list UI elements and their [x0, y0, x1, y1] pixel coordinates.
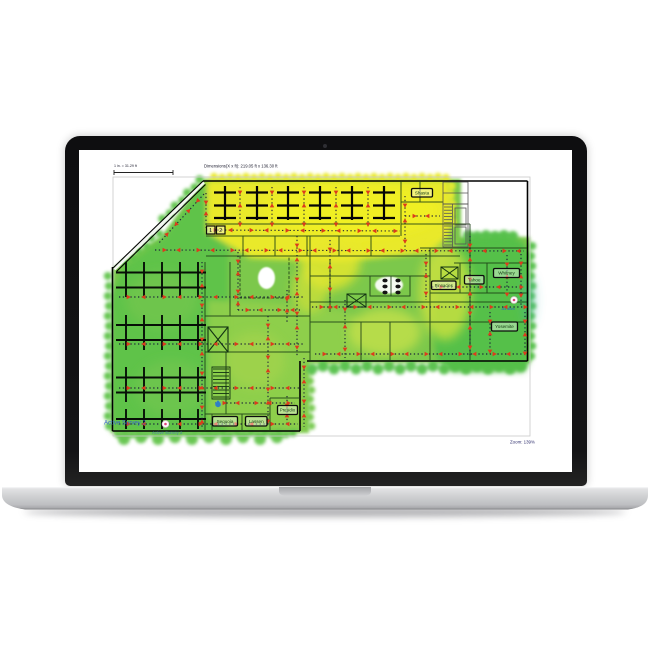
- svg-text:1: 1: [209, 228, 212, 234]
- svg-text:Zoom: 139%: Zoom: 139%: [510, 440, 535, 445]
- svg-text:Lassen: Lassen: [249, 419, 264, 424]
- svg-text:Dimensions(X x ft): 219.05 ft: Dimensions(X x ft): 219.05 ft x 136.30 f…: [204, 164, 278, 169]
- svg-text:Sequoia: Sequoia: [217, 419, 234, 424]
- svg-text:-64 dBm: -64 dBm: [501, 307, 515, 311]
- svg-text:Pinnacles: Pinnacles: [435, 283, 453, 288]
- svg-text:Tahoe: Tahoe: [468, 277, 481, 282]
- svg-text:Active Survey 2: Active Survey 2: [104, 421, 146, 427]
- svg-text:Shasta: Shasta: [415, 190, 430, 195]
- svg-text:Presidio: Presidio: [280, 408, 296, 413]
- svg-text:Yosemite: Yosemite: [495, 324, 514, 329]
- svg-text:Whitney: Whitney: [498, 271, 515, 276]
- svg-text:1 in. = 31.29 ft: 1 in. = 31.29 ft: [114, 164, 137, 168]
- svg-text:Active Survey 2: Active Survey 2: [152, 430, 183, 435]
- svg-text:2: 2: [219, 228, 222, 234]
